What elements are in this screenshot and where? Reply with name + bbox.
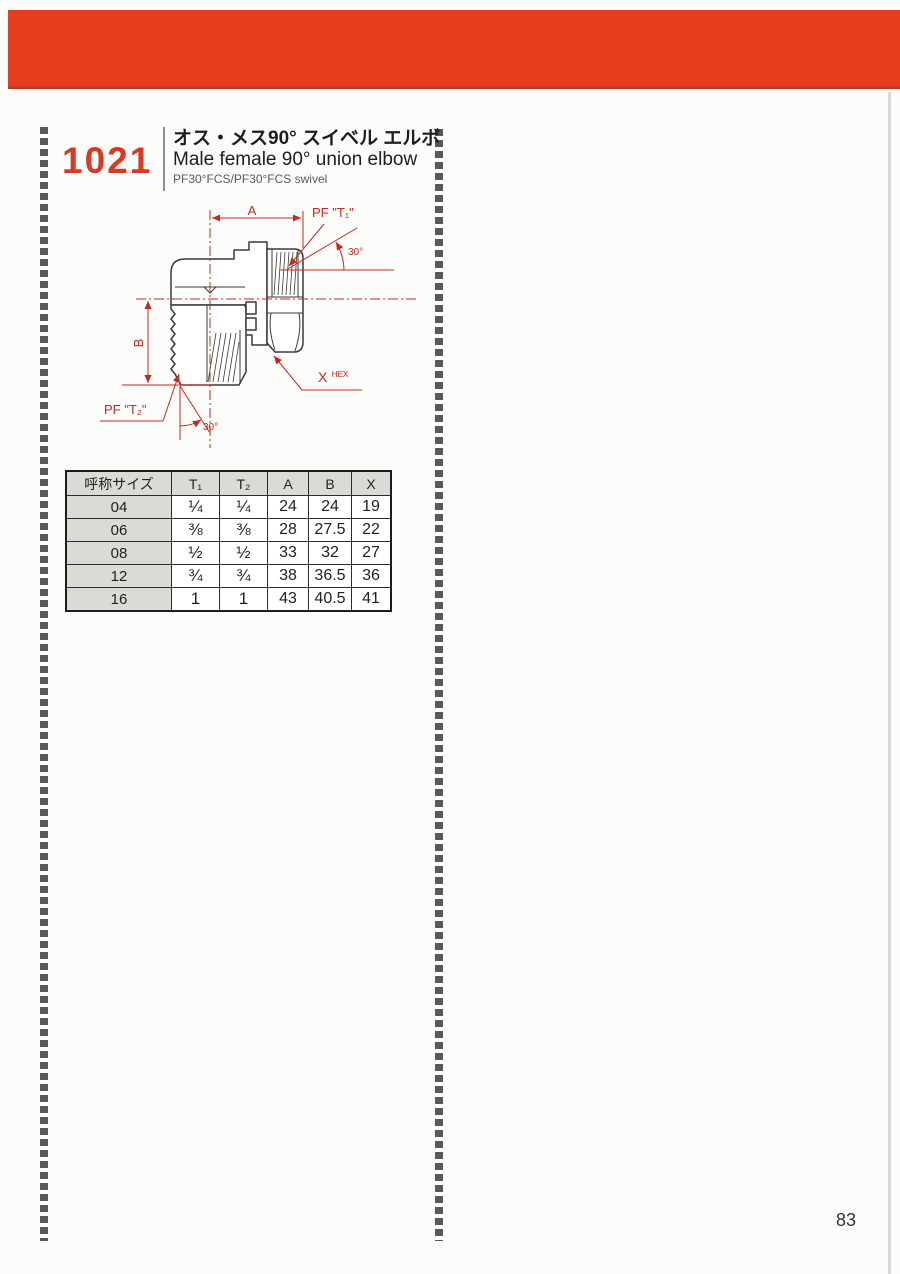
col-header-t1: T₁ <box>172 471 220 496</box>
cell-t1: 1 <box>172 588 220 612</box>
technical-drawing: A PF "T₁" 30° B PF "T₂" 30° <box>100 202 420 452</box>
col-header-x: X <box>352 471 392 496</box>
header-bar <box>8 10 900 89</box>
table-row: 16 1 1 43 40.5 41 <box>66 588 391 612</box>
perforation-line-center <box>435 129 443 1241</box>
cell-a: 43 <box>268 588 309 612</box>
cell-x: 41 <box>352 588 392 612</box>
product-titles: オス・メス90° スイベル エルボ Male female 90° union … <box>173 128 440 186</box>
cell-t2: ⅜ <box>220 519 268 542</box>
dimension-a-label: A <box>248 203 257 218</box>
hex-label: X HEX <box>318 369 349 386</box>
perforation-line-left <box>40 127 48 1241</box>
col-header-a: A <box>268 471 309 496</box>
cell-a: 24 <box>268 496 309 519</box>
pf-t1-leader <box>289 224 324 266</box>
spec-table-header-row: 呼称サイズ T₁ T₂ A B X <box>66 471 391 496</box>
angle-bottom-label: 30° <box>203 422 218 433</box>
cell-size: 16 <box>66 588 172 612</box>
cell-t2: ½ <box>220 542 268 565</box>
cell-b: 24 <box>309 496 352 519</box>
cell-t1: ¼ <box>172 496 220 519</box>
col-header-t2: T₂ <box>220 471 268 496</box>
hex-label-x: X <box>318 369 328 385</box>
cell-a: 33 <box>268 542 309 565</box>
table-row: 12 ¾ ¾ 38 36.5 36 <box>66 565 391 588</box>
angle-top-label: 30° <box>348 247 363 258</box>
cell-b: 32 <box>309 542 352 565</box>
cell-a: 28 <box>268 519 309 542</box>
page-number: 83 <box>836 1210 856 1231</box>
cell-size: 04 <box>66 496 172 519</box>
catalog-page: 1021 オス・メス90° スイベル エルボ Male female 90° u… <box>0 0 900 1274</box>
cell-t1: ½ <box>172 542 220 565</box>
pf-t2-label: PF "T₂" <box>104 402 147 417</box>
page-edge-shadow <box>888 92 891 1274</box>
product-code: 1021 <box>62 140 152 182</box>
cell-b: 27.5 <box>309 519 352 542</box>
cell-t2: ¾ <box>220 565 268 588</box>
cell-x: 36 <box>352 565 392 588</box>
cell-b: 36.5 <box>309 565 352 588</box>
cell-size: 06 <box>66 519 172 542</box>
cell-size: 12 <box>66 565 172 588</box>
cell-a: 38 <box>268 565 309 588</box>
col-header-b: B <box>309 471 352 496</box>
dimension-b-label: B <box>131 339 146 348</box>
cell-t1: ¾ <box>172 565 220 588</box>
pf-t1-label: PF "T₁" <box>312 205 354 220</box>
spec-table: 呼称サイズ T₁ T₂ A B X 04 ¼ ¼ 24 24 19 06 ⅜ ⅜… <box>65 470 392 612</box>
table-row: 08 ½ ½ 33 32 27 <box>66 542 391 565</box>
cell-x: 19 <box>352 496 392 519</box>
cell-t2: 1 <box>220 588 268 612</box>
cell-x: 27 <box>352 542 392 565</box>
col-header-size: 呼称サイズ <box>66 471 172 496</box>
cell-size: 08 <box>66 542 172 565</box>
table-row: 06 ⅜ ⅜ 28 27.5 22 <box>66 519 391 542</box>
product-title-english: Male female 90° union elbow <box>173 149 440 170</box>
cell-t2: ¼ <box>220 496 268 519</box>
product-thread-spec: PF30°FCS/PF30°FCS swivel <box>173 173 440 186</box>
header-divider <box>163 127 165 191</box>
hex-label-sup: HEX <box>332 370 349 379</box>
cell-x: 22 <box>352 519 392 542</box>
cell-t1: ⅜ <box>172 519 220 542</box>
product-title-japanese: オス・メス90° スイベル エルボ <box>173 128 440 149</box>
table-row: 04 ¼ ¼ 24 24 19 <box>66 496 391 519</box>
cell-b: 40.5 <box>309 588 352 612</box>
